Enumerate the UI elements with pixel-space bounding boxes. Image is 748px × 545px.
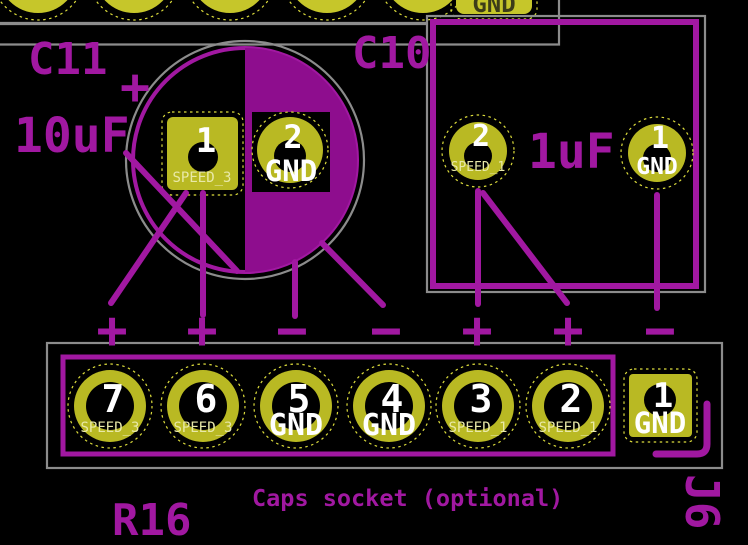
pcb-layout-svg: GND 1 SPEED_3 2 GND C11 + 10uF <box>0 0 748 545</box>
pad-net-label: GND <box>362 408 416 443</box>
pad-net-label: GND <box>269 408 323 443</box>
socket-pad-1[interactable]: 1 GND <box>624 369 697 442</box>
pad-net-label: GND <box>636 154 678 180</box>
pad-net-label: SPEED_1 <box>448 420 507 436</box>
polarity-minus-icon: − <box>644 301 675 361</box>
polarity-plus-icon: + <box>186 301 217 361</box>
pad-number: 2 <box>472 119 490 154</box>
pad-number: 6 <box>195 377 218 421</box>
socket-caption[interactable]: Caps socket (optional) <box>252 484 563 512</box>
c11-reference[interactable]: C11 <box>28 34 107 85</box>
c10-reference[interactable]: C10 <box>352 28 431 79</box>
polarity-minus-icon: − <box>370 301 401 361</box>
pad-net-label: SPEED_1 <box>451 160 506 175</box>
board-background <box>0 0 748 545</box>
c11-pad-1[interactable]: 1 SPEED_3 <box>162 112 243 195</box>
pad-number: 2 <box>560 377 583 421</box>
polarity-plus-icon: + <box>461 301 492 361</box>
pad-number: 7 <box>102 377 125 421</box>
r16-reference[interactable]: R16 <box>112 495 191 545</box>
pad-net-label: SPEED_3 <box>173 420 232 436</box>
c10-value[interactable]: 1uF <box>528 124 615 180</box>
pad-net-label: GND <box>634 406 686 440</box>
pad-net-label: SPEED_3 <box>80 420 139 436</box>
pad-net-label: GND <box>265 154 317 188</box>
pad-net-label: SPEED_3 <box>172 170 231 186</box>
pad-net-label: SPEED_1 <box>538 420 597 436</box>
polarity-plus-icon: + <box>96 301 127 361</box>
j6-reference[interactable]: J6 <box>675 474 729 529</box>
polarity-plus-icon: + <box>552 301 583 361</box>
pad-number: 1 <box>196 121 216 161</box>
pad-number: 1 <box>651 121 669 156</box>
polarity-minus-icon: − <box>276 301 307 361</box>
c11-value[interactable]: 10uF <box>14 108 130 164</box>
pad-number: 3 <box>470 377 493 421</box>
pcb-canvas[interactable]: GND 1 SPEED_3 2 GND C11 + 10uF <box>0 0 748 545</box>
pad-number: 2 <box>283 118 302 156</box>
